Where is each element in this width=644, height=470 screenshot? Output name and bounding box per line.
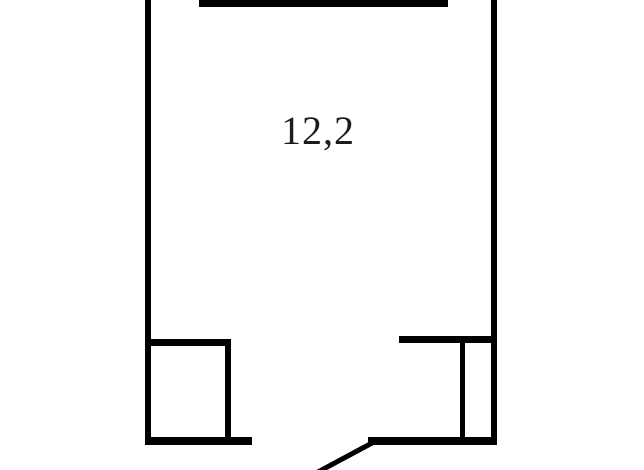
right-closet-top-wall [399, 336, 491, 343]
floor-plan-drawing [0, 0, 644, 470]
left-closet-top-wall [148, 339, 231, 346]
top-wall [199, 0, 448, 7]
room-area-label: 12,2 [281, 111, 355, 151]
right-wall [491, 0, 497, 445]
floor-plan: 12,2 [0, 0, 644, 470]
left-closet-side-wall [225, 339, 231, 437]
door-leaf-line [318, 443, 372, 470]
bottom-left-wall [145, 437, 252, 445]
bottom-right-wall [368, 437, 497, 445]
right-closet-side-wall [460, 336, 465, 437]
left-wall [145, 0, 151, 445]
